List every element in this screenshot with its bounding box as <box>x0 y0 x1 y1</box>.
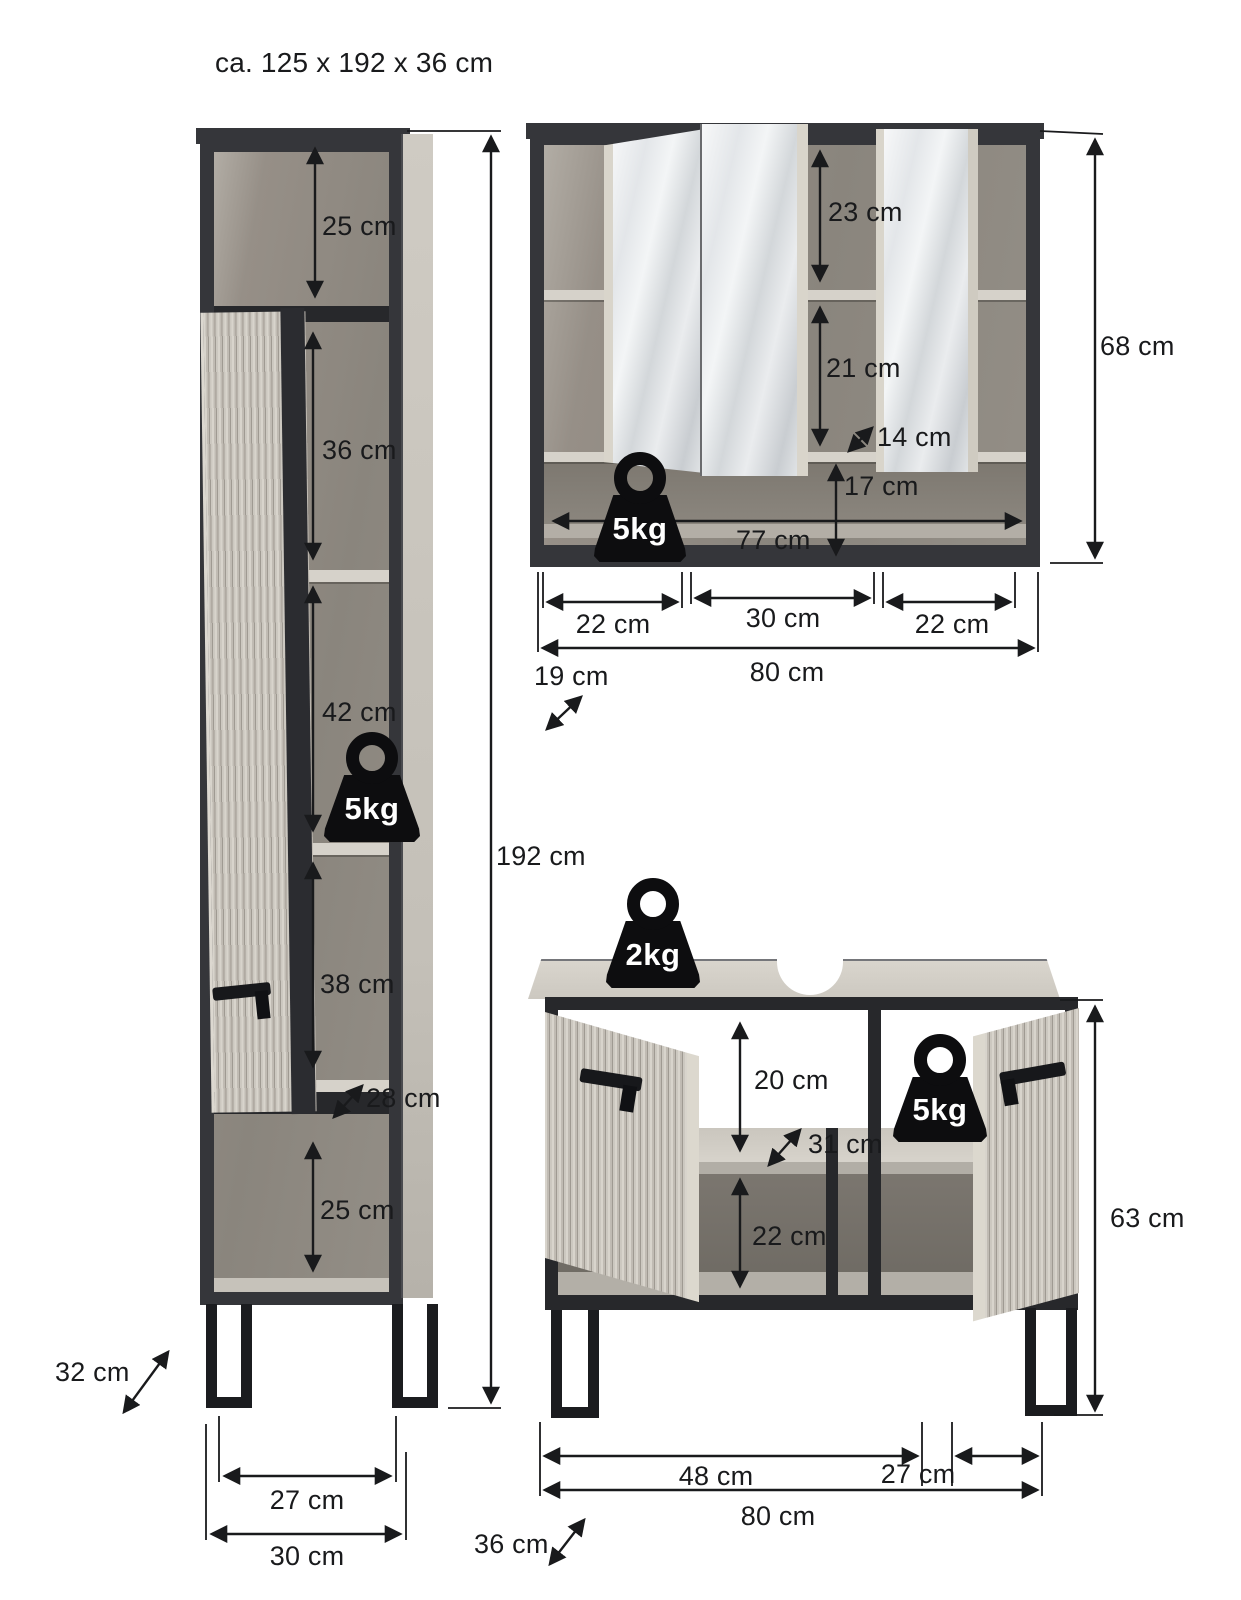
mirror-left-section-width: 22 cm <box>576 610 651 638</box>
mirror-center-section-width: 30 cm <box>746 604 821 632</box>
sink-open-space-height: 20 cm <box>754 1066 829 1094</box>
tall-depth: 32 cm <box>55 1358 130 1386</box>
weight-label: 2kg <box>626 937 681 973</box>
tall-bottom-compartment-height: 25 cm <box>320 1196 395 1224</box>
sink-cabinet-leg-left <box>551 1310 599 1418</box>
mirror-door-center-panel <box>700 124 808 476</box>
mirror-mid-compartment-height: 21 cm <box>826 354 901 382</box>
sink-total-height: 63 cm <box>1110 1204 1185 1232</box>
sink-shelf-depth: 31 cm <box>808 1130 883 1158</box>
mirror-total-width: 80 cm <box>750 658 825 686</box>
weight-label: 5kg <box>913 1092 968 1128</box>
page-title: ca. 125 x 192 x 36 cm <box>215 48 493 77</box>
sink-door-left <box>545 1012 699 1302</box>
weight-ring-icon <box>914 1034 966 1086</box>
tall-cabinet-leg-left <box>206 1304 252 1408</box>
sink-depth: 36 cm <box>474 1530 549 1558</box>
mirror-shelf-depth: 14 cm <box>877 423 952 451</box>
tall-cabinet-floor <box>214 1278 389 1292</box>
mirror-right-section-width: 22 cm <box>915 610 990 638</box>
weight-ring-icon <box>614 452 666 504</box>
tall-middle-compartment-height: 42 cm <box>322 698 397 726</box>
mirror-cabinet-weight-badge: 5kg <box>594 452 686 562</box>
sink-right-section-width: 27 cm <box>881 1460 956 1488</box>
mirror-bottom-open-height: 17 cm <box>844 472 919 500</box>
tall-shelf-depth: 28 cm <box>366 1084 441 1112</box>
mirror-inner-width: 77 cm <box>736 526 811 554</box>
sink-total-width: 80 cm <box>741 1502 816 1530</box>
tall-cabinet-side-panel <box>401 134 433 1298</box>
mirror-top-compartment-height: 23 cm <box>828 198 903 226</box>
tall-lower-compartment-height: 38 cm <box>320 970 395 998</box>
tall-cabinet-weight-badge: 5kg <box>324 732 420 842</box>
sink-cabinet-leg-right <box>1025 1308 1077 1416</box>
weight-ring-icon <box>346 732 398 784</box>
mirror-total-height: 68 cm <box>1100 332 1175 360</box>
tall-upper-compartment-height: 36 cm <box>322 436 397 464</box>
mirror-door-left-panel <box>604 128 700 476</box>
tall-cabinet-door-handle <box>212 978 290 1029</box>
tall-leg-span: 27 cm <box>270 1486 345 1514</box>
sink-left-section-width: 48 cm <box>679 1462 754 1490</box>
tall-total-width: 30 cm <box>270 1542 345 1570</box>
weight-label: 5kg <box>613 511 668 547</box>
weight-label: 5kg <box>345 791 400 827</box>
mirror-depth: 19 cm <box>534 662 609 690</box>
furniture-dimension-diagram: ca. 125 x 192 x 36 cm <box>0 0 1241 1600</box>
sink-cabinet-top-weight-badge: 2kg <box>606 878 700 988</box>
mirror-door-right <box>876 129 978 472</box>
weight-ring-icon <box>627 878 679 930</box>
sink-bottom-compartment-height: 22 cm <box>752 1222 827 1250</box>
tall-total-height: 192 cm <box>496 842 586 870</box>
sink-cabinet-top-rail <box>545 997 1078 1010</box>
sink-cabinet-inner-weight-badge: 5kg <box>893 1034 987 1142</box>
tall-cabinet-leg-right <box>392 1304 438 1408</box>
tall-top-compartment-height: 25 cm <box>322 212 397 240</box>
